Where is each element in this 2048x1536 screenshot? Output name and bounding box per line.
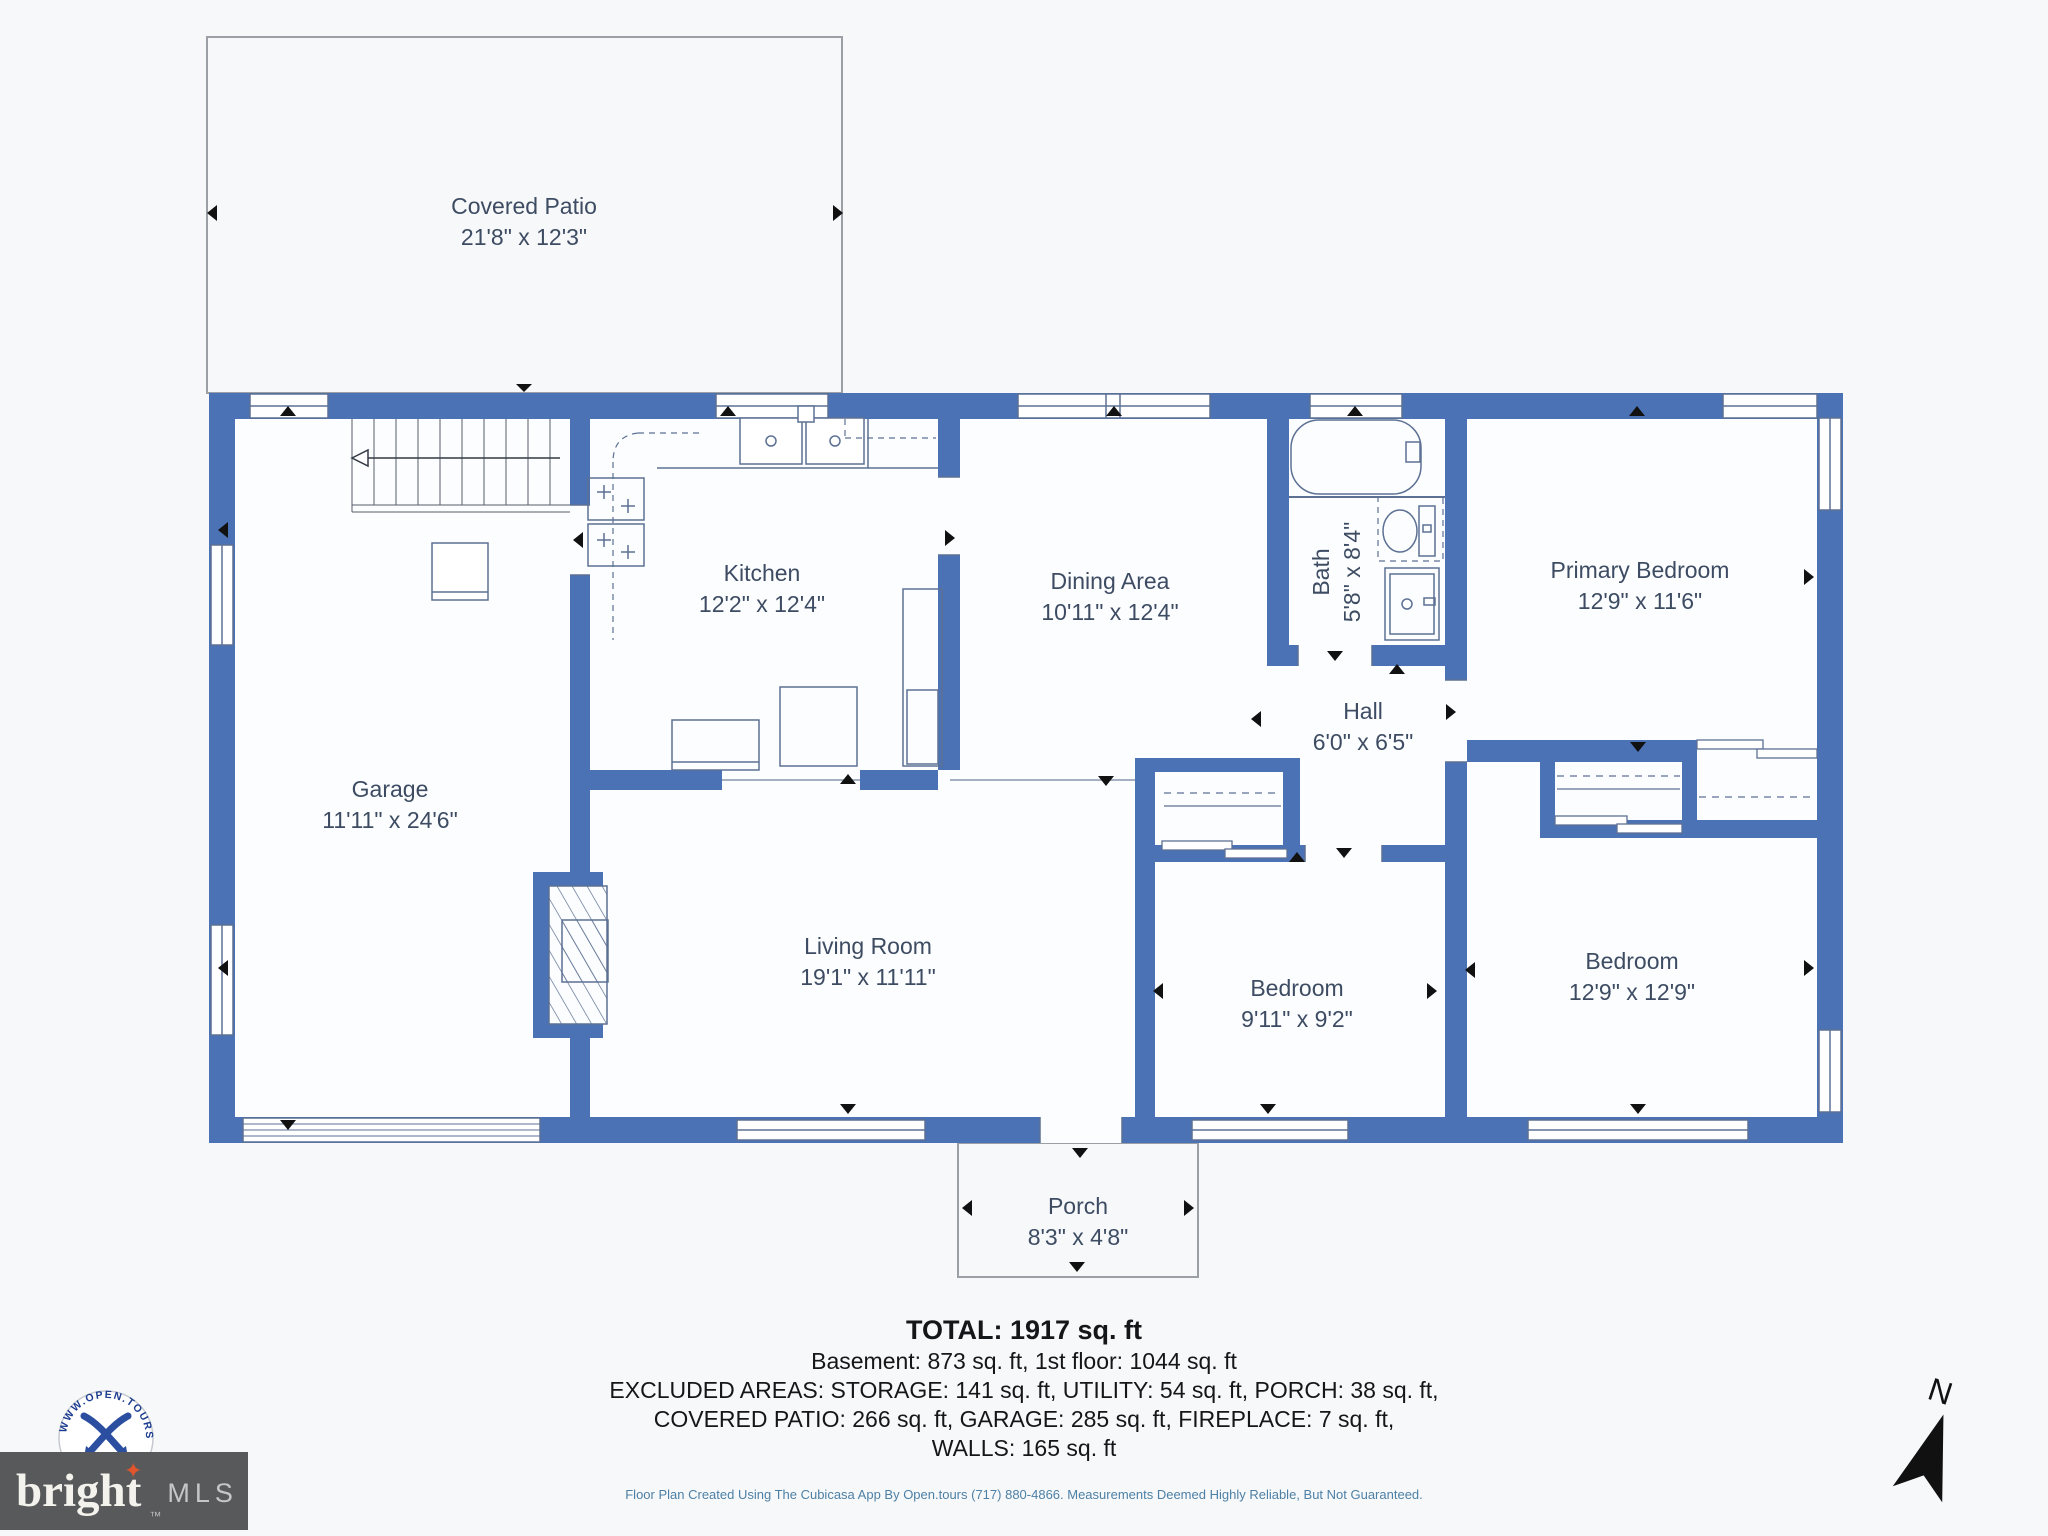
room-label-hall: Hall6'0" x 6'5" bbox=[1313, 696, 1414, 758]
disclaimer-text: Floor Plan Created Using The Cubicasa Ap… bbox=[0, 1487, 2048, 1502]
room-label-living-room: Living Room19'1" x 11'11" bbox=[800, 931, 936, 993]
bright-wordmark: bright bbox=[16, 1452, 141, 1530]
room-label-bath: Bath5'8" x 8'4" bbox=[1306, 522, 1368, 623]
area-summary: TOTAL: 1917 sq. ft Basement: 873 sq. ft,… bbox=[0, 1313, 2048, 1463]
bright-mls-logo: bright™ ✦ MLS bbox=[0, 1452, 248, 1530]
summary-line: WALLS: 165 sq. ft bbox=[0, 1434, 2048, 1463]
summary-line: EXCLUDED AREAS: STORAGE: 141 sq. ft, UTI… bbox=[0, 1376, 2048, 1405]
room-label-garage: Garage11'11" x 24'6" bbox=[322, 774, 458, 836]
room-label-kitchen: Kitchen12'2" x 12'4" bbox=[699, 558, 825, 620]
floor-plan-page: N WWW.OPEN.TOURS Covered Patio21'8" x 12… bbox=[0, 0, 2048, 1536]
room-label-primary-bedroom: Primary Bedroom12'9" x 11'6" bbox=[1551, 555, 1730, 617]
star-icon: ✦ bbox=[124, 1460, 142, 1482]
fireplace bbox=[533, 872, 608, 1038]
room-label-porch: Porch8'3" x 4'8" bbox=[1028, 1191, 1129, 1253]
room-label-bedroom-middle: Bedroom9'11" x 9'2" bbox=[1241, 973, 1353, 1035]
total-area-text: TOTAL: 1917 sq. ft bbox=[0, 1313, 2048, 1347]
mls-wordmark: MLS bbox=[167, 1478, 238, 1509]
room-label-covered-patio: Covered Patio21'8" x 12'3" bbox=[451, 191, 597, 253]
summary-line: COVERED PATIO: 266 sq. ft, GARAGE: 285 s… bbox=[0, 1405, 2048, 1434]
room-label-bedroom-right: Bedroom12'9" x 12'9" bbox=[1569, 946, 1695, 1008]
room-label-dining-area: Dining Area10'11" x 12'4" bbox=[1041, 566, 1178, 628]
water-heater bbox=[432, 543, 488, 600]
trademark-symbol: ™ bbox=[149, 1509, 161, 1523]
floor-plan-drawing: N WWW.OPEN.TOURS bbox=[0, 0, 2048, 1536]
summary-line: Basement: 873 sq. ft, 1st floor: 1044 sq… bbox=[0, 1347, 2048, 1376]
